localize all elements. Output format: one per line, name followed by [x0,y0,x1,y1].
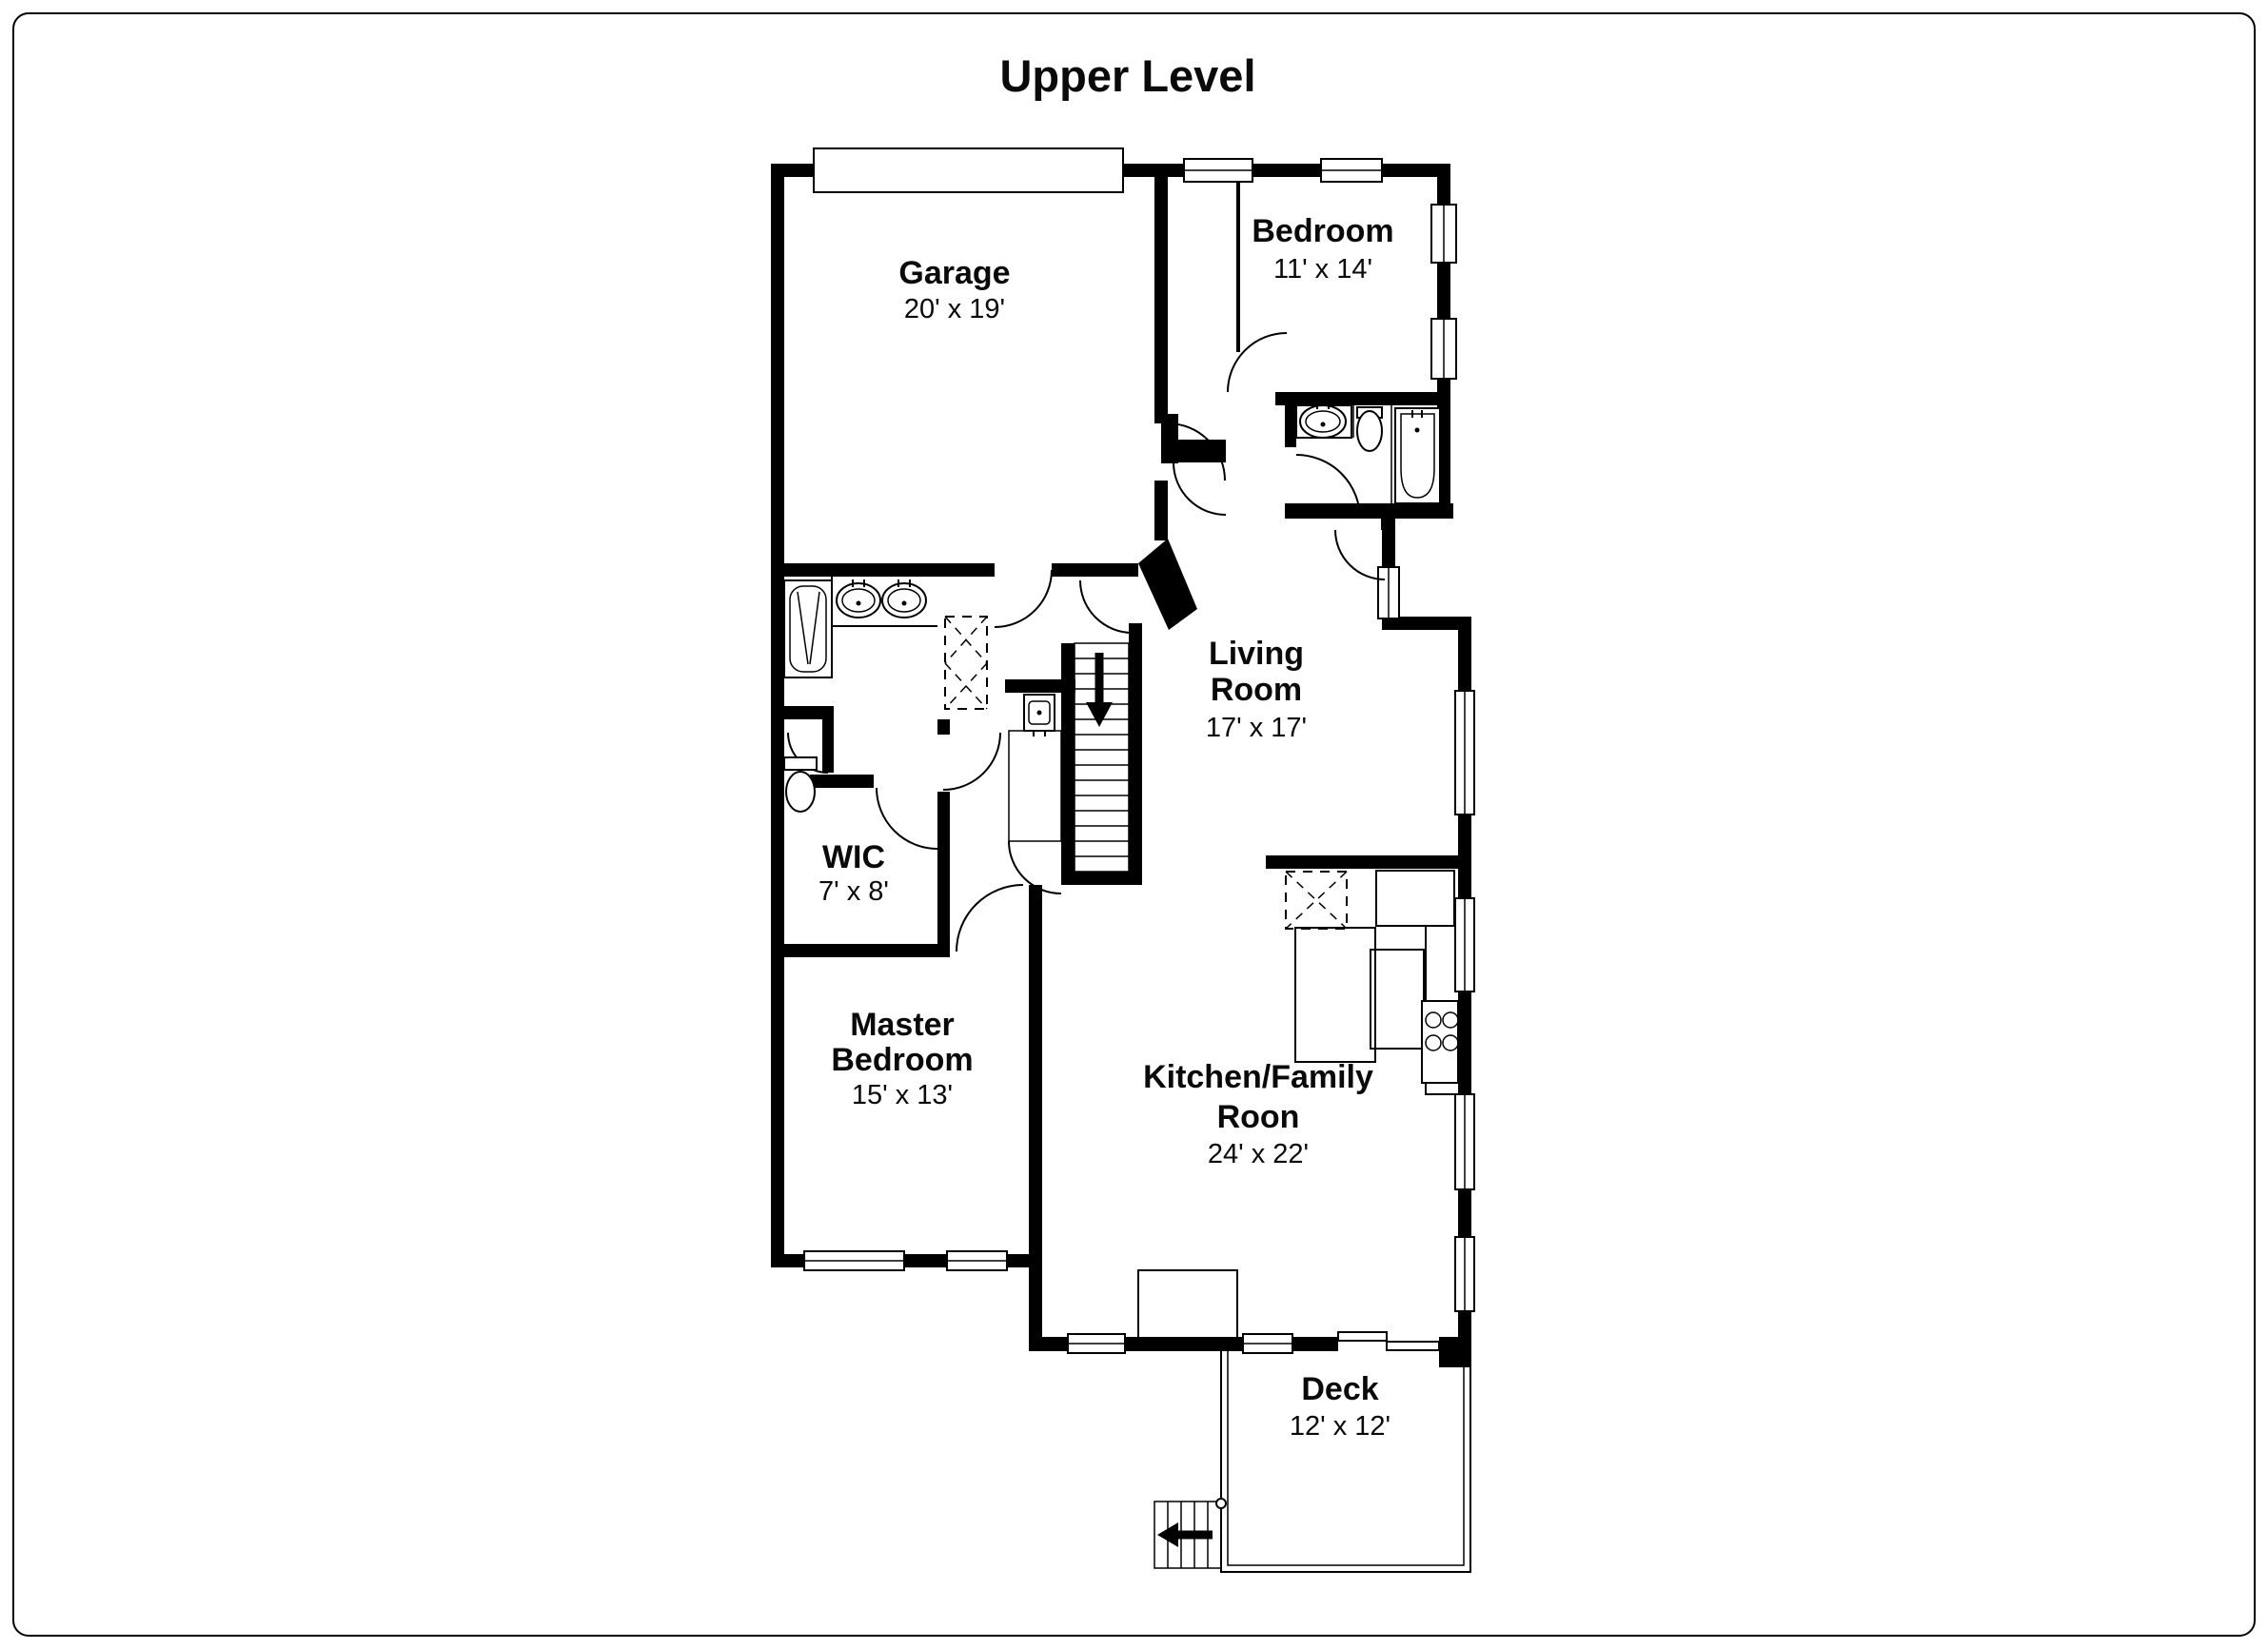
window [1431,319,1456,379]
master-door-arc [957,885,1023,952]
svg-text:12' x 12': 12' x 12' [1290,1411,1390,1442]
wic-label: WIC 7' x 8' [818,839,889,907]
toilet-icon [784,757,817,812]
cabinet [1376,871,1454,926]
svg-text:7' x 8': 7' x 8' [818,876,889,907]
svg-text:11' x 14': 11' x 14' [1273,254,1372,285]
garage-label: Garage 20' x 19' [898,255,1010,324]
window [1455,898,1474,991]
window [804,1251,904,1270]
kitchen-family-room-label: Kitchen/Family Roon 24' x 22' [1143,1059,1373,1169]
svg-text:Master: Master [850,1007,955,1043]
stair-top-door-arc [1080,580,1133,633]
linen-closet [945,617,987,709]
window [1068,1334,1125,1353]
bathtub-icon [784,580,832,677]
hall-stairs-door-arc [1173,462,1226,515]
svg-text:20' x 19': 20' x 19' [904,294,1005,324]
stairs [1075,643,1129,872]
window [1455,691,1474,815]
svg-text:WIC: WIC [822,839,885,875]
svg-text:Deck: Deck [1301,1371,1378,1407]
svg-text:Kitchen/Family: Kitchen/Family [1143,1059,1373,1095]
deck-stairs [1154,1499,1226,1568]
deck-label: Deck 12' x 12' [1290,1371,1390,1442]
garage-entry-door-arc [995,570,1052,627]
stove-icon [1422,1001,1458,1083]
window [1184,159,1252,182]
svg-text:Bedroom: Bedroom [831,1042,973,1078]
sliding-door [1338,1332,1439,1350]
window [947,1251,1007,1270]
stairs-down-arrow-icon [1086,653,1113,727]
window [1455,1237,1474,1311]
window [1455,1094,1474,1189]
master-bedroom-label: Master Bedroom 15' x 13' [831,1007,973,1110]
upper-bathroom [1296,402,1440,503]
kitchen-island [1295,928,1375,1062]
deck-stairs-arrow-icon [1157,1522,1213,1547]
floor-plan: Upper Level [0,0,2268,1649]
window [1243,1334,1292,1353]
svg-text:15' x 13': 15' x 13' [852,1080,953,1110]
bathtub-icon [1391,405,1440,503]
window [1431,205,1456,263]
sink-icon [1296,402,1351,438]
wic-bath-door-arc [877,788,937,849]
under-stair-closet [1009,731,1061,841]
fireplace [1138,1270,1237,1339]
svg-text:Living: Living [1209,636,1304,672]
living-room-label: Living Room 17' x 17' [1206,636,1307,743]
window [1378,567,1399,618]
window [1321,159,1382,182]
svg-text:24' x 22': 24' x 22' [1208,1139,1309,1169]
svg-text:Room: Room [1211,672,1302,708]
double-vanity-icon [832,577,937,626]
page-title: Upper Level [999,50,1255,101]
wic-hall-door-arc [943,733,1000,790]
hall-fixtures [1009,695,1061,841]
svg-text:Roon: Roon [1217,1099,1300,1135]
svg-text:17' x 17': 17' x 17' [1206,713,1307,743]
svg-text:Garage: Garage [898,255,1010,291]
svg-text:Bedroom: Bedroom [1252,213,1393,249]
toilet-icon [1353,405,1382,451]
garage-door [814,148,1123,192]
pantry-closet [1286,872,1347,929]
refrigerator [1371,950,1424,1049]
floorplan-page: Upper Level [0,0,2268,1649]
bedroom-label: Bedroom 11' x 14' [1252,213,1393,285]
